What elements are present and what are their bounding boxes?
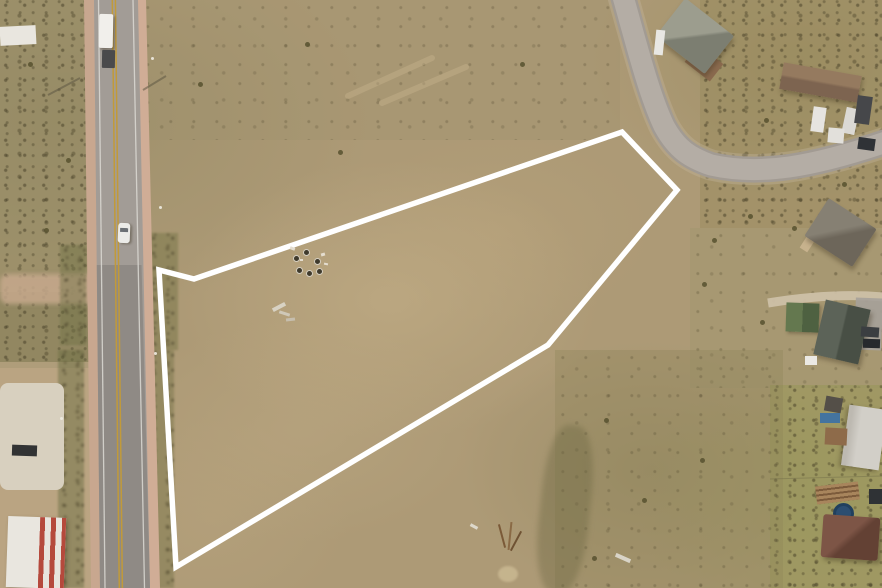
fence-line [770, 476, 882, 479]
scene-overlay [0, 0, 882, 588]
aerial-photo [0, 0, 882, 588]
dirt-track [348, 58, 432, 96]
parcel-boundary [159, 132, 677, 567]
utility-pole-shadow [48, 78, 80, 95]
gravel-driveway [768, 296, 882, 303]
